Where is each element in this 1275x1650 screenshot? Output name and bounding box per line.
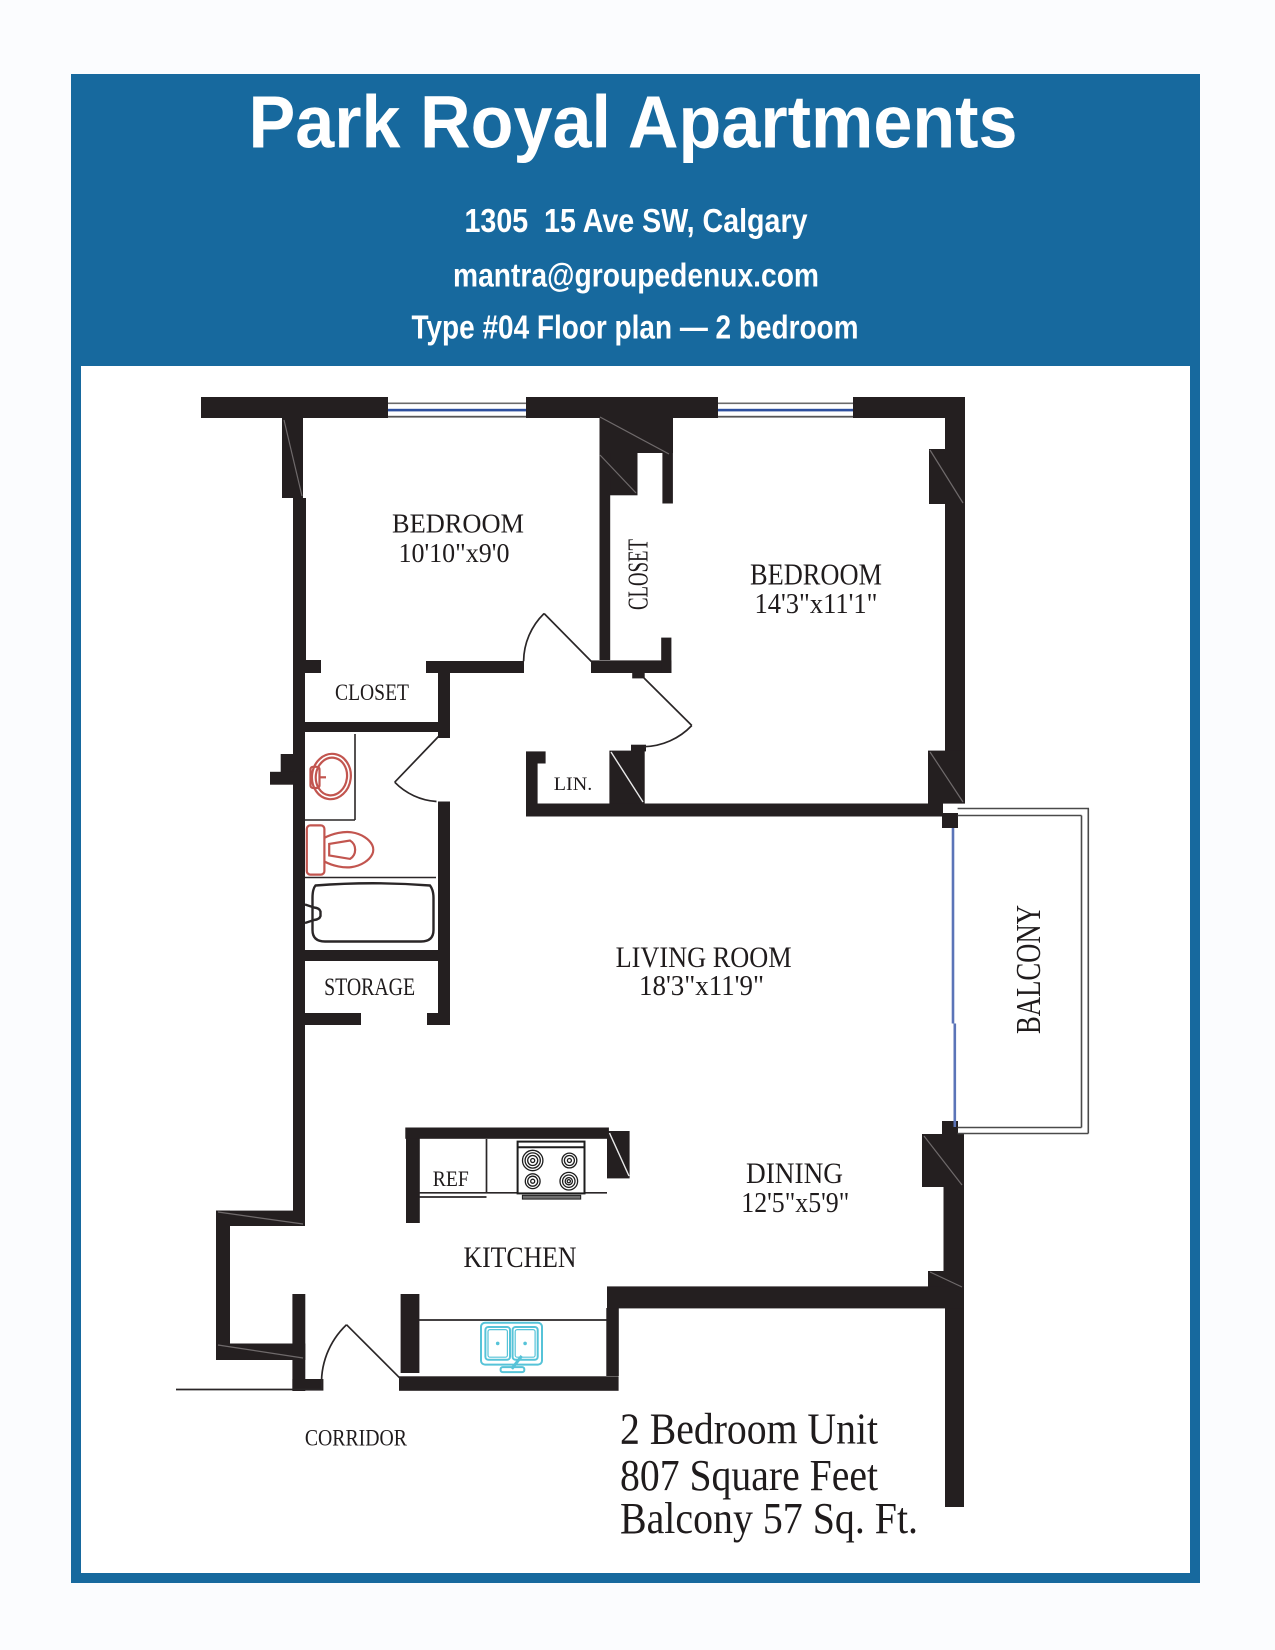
- svg-text:CORRIDOR: CORRIDOR: [305, 1426, 408, 1451]
- svg-text:Park Royal Apartments: Park Royal Apartments: [249, 81, 1018, 164]
- svg-text:STORAGE: STORAGE: [324, 974, 415, 1001]
- svg-text:LIVING ROOM: LIVING ROOM: [616, 941, 792, 974]
- svg-text:18'3"x11'9": 18'3"x11'9": [639, 971, 764, 1002]
- svg-text:12'5"x5'9": 12'5"x5'9": [741, 1188, 849, 1219]
- svg-text:BALCONY: BALCONY: [1010, 905, 1048, 1034]
- svg-text:2 Bedroom Unit: 2 Bedroom Unit: [620, 1405, 878, 1454]
- svg-text:807 Square Feet: 807 Square Feet: [620, 1451, 878, 1500]
- svg-text:LIN.: LIN.: [554, 774, 593, 795]
- svg-text:KITCHEN: KITCHEN: [464, 1241, 577, 1274]
- svg-text:CLOSET: CLOSET: [335, 680, 409, 705]
- svg-text:14'3"x11'1": 14'3"x11'1": [755, 589, 878, 620]
- svg-text:REF: REF: [433, 1166, 469, 1191]
- svg-text:DINING: DINING: [746, 1157, 843, 1190]
- svg-text:Type #04 Floor plan — 2 bedroo: Type #04 Floor plan — 2 bedroom: [412, 309, 859, 346]
- svg-text:1305 15 Ave SW, Calgary: 1305 15 Ave SW, Calgary: [465, 202, 809, 239]
- svg-text:BEDROOM: BEDROOM: [392, 509, 524, 539]
- svg-text:BEDROOM: BEDROOM: [750, 557, 882, 592]
- svg-text:CLOSET: CLOSET: [623, 539, 655, 610]
- svg-text:10'10"x9'0: 10'10"x9'0: [399, 538, 510, 568]
- svg-text:mantra@groupedenux.com: mantra@groupedenux.com: [453, 257, 819, 294]
- svg-text:Balcony 57 Sq. Ft.: Balcony 57 Sq. Ft.: [620, 1494, 918, 1543]
